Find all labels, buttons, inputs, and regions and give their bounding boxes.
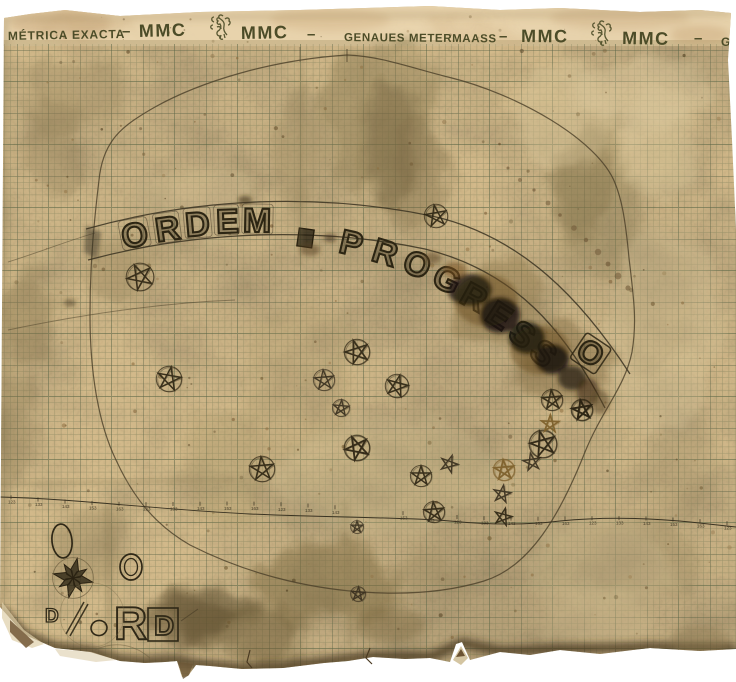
svg-text:D: D [154,610,174,641]
svg-text:143: 143 [643,521,651,526]
svg-text:143: 143 [62,504,70,509]
svg-text:133: 133 [481,521,489,526]
svg-text:153: 153 [670,522,678,527]
svg-text:GENAUES METERMAASS: GENAUES METERMAASS [344,32,497,45]
svg-text:MÉTRICA EXACTA: MÉTRICA EXACTA [8,26,125,43]
svg-text:MMC: MMC [241,22,289,43]
svg-text:163: 163 [562,521,570,526]
svg-text:133: 133 [35,502,43,507]
svg-text:143: 143 [508,521,516,526]
svg-text:D: D [45,606,59,627]
svg-text:123: 123 [143,507,151,512]
svg-text:133: 133 [305,508,313,513]
svg-text:153: 153 [224,506,232,511]
svg-text:133: 133 [616,521,624,526]
svg-text:123: 123 [724,526,732,531]
svg-text:–: – [122,23,130,40]
svg-text:163: 163 [251,506,259,511]
svg-text:163: 163 [427,518,435,523]
svg-text:–: – [499,28,507,45]
svg-text:R: R [114,597,147,649]
svg-text:123: 123 [589,521,597,526]
svg-text:–: – [694,30,702,47]
svg-text:143: 143 [197,506,205,511]
svg-text:123: 123 [454,520,462,525]
svg-text:153: 153 [400,516,408,521]
svg-text:–: – [307,26,315,43]
svg-text:133: 133 [170,507,178,512]
svg-text:123: 123 [8,500,16,505]
svg-text:143: 143 [332,510,340,515]
svg-text:163: 163 [697,524,705,529]
svg-text:153: 153 [89,505,97,510]
svg-text:153: 153 [535,521,543,526]
svg-text:MMC: MMC [139,20,187,41]
svg-text:MMC: MMC [521,26,569,46]
svg-text:123: 123 [278,507,286,512]
svg-text:MMC: MMC [622,28,670,49]
svg-text:163: 163 [116,506,124,511]
